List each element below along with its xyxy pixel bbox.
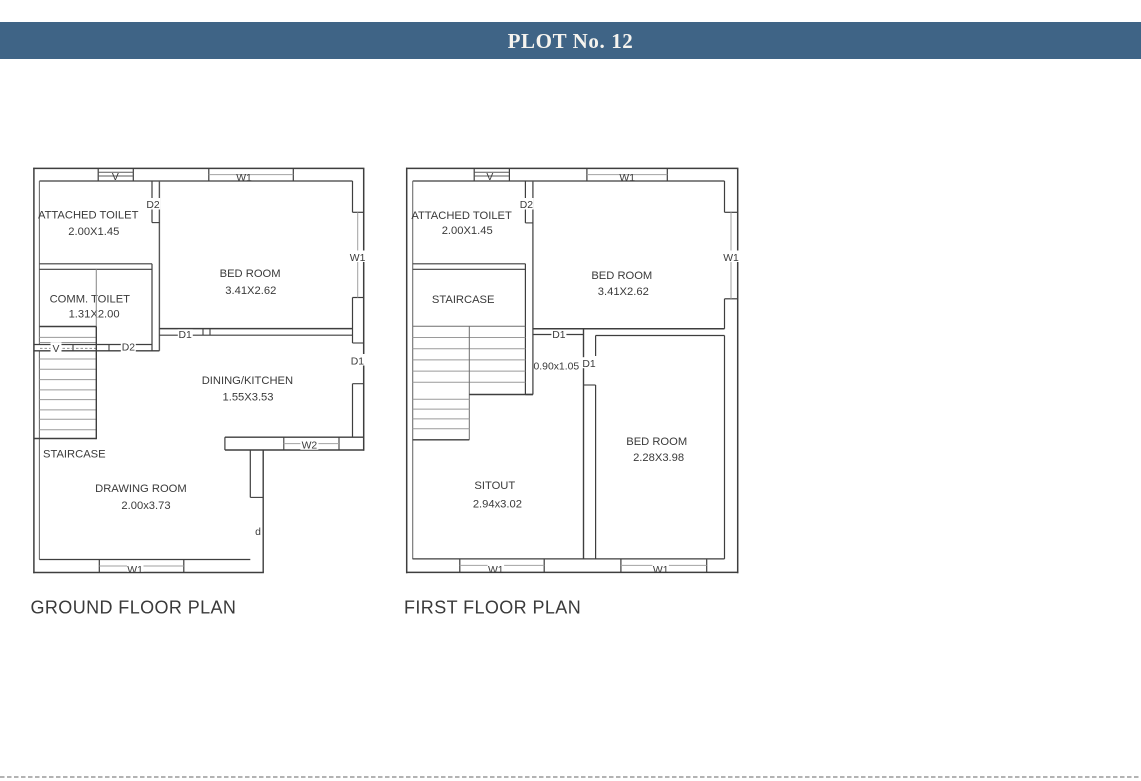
svg-text:D1: D1	[351, 356, 365, 367]
svg-text:BED ROOM: BED ROOM	[220, 268, 281, 280]
svg-text:3.41X2.62: 3.41X2.62	[598, 286, 649, 298]
svg-text:DINING/KITCHEN: DINING/KITCHEN	[202, 375, 293, 387]
svg-text:W1: W1	[127, 565, 143, 576]
svg-text:ATTACHED TOILET: ATTACHED TOILET	[411, 210, 512, 222]
svg-text:D2: D2	[520, 200, 534, 211]
svg-text:1.55X3.53: 1.55X3.53	[222, 391, 273, 403]
svg-text:2.94x3.02: 2.94x3.02	[473, 499, 522, 511]
svg-text:STAIRCASE: STAIRCASE	[43, 449, 106, 461]
svg-text:2.00x3.73: 2.00x3.73	[121, 500, 170, 512]
svg-text:W1: W1	[236, 173, 252, 184]
svg-text:W1: W1	[488, 565, 504, 576]
svg-text:2.00X1.45: 2.00X1.45	[68, 226, 119, 238]
svg-text:0.90x1.05: 0.90x1.05	[534, 362, 580, 373]
svg-text:FIRST FLOOR PLAN: FIRST FLOOR PLAN	[404, 597, 581, 617]
svg-text:W1: W1	[619, 173, 635, 184]
svg-text:D1: D1	[179, 330, 193, 341]
svg-text:BED ROOM: BED ROOM	[591, 270, 652, 282]
svg-text:SITOUT: SITOUT	[474, 480, 515, 492]
svg-text:W2: W2	[302, 441, 318, 452]
svg-text:1.31X2.00: 1.31X2.00	[69, 308, 120, 320]
svg-text:V: V	[53, 344, 60, 355]
svg-text:2.28X3.98: 2.28X3.98	[633, 452, 684, 464]
svg-text:COMM. TOILET: COMM. TOILET	[50, 293, 131, 305]
svg-text:W1: W1	[653, 565, 669, 576]
svg-text:2.00X1.45: 2.00X1.45	[442, 225, 493, 237]
svg-text:STAIRCASE: STAIRCASE	[432, 294, 495, 306]
svg-text:DRAWING ROOM: DRAWING ROOM	[95, 483, 187, 495]
svg-text:W1: W1	[723, 253, 739, 264]
svg-text:V: V	[486, 172, 493, 183]
svg-text:3.41X2.62: 3.41X2.62	[225, 285, 276, 297]
svg-text:D1: D1	[582, 359, 596, 370]
svg-text:ATTACHED TOILET: ATTACHED TOILET	[38, 209, 139, 221]
svg-text:D2: D2	[122, 343, 136, 354]
svg-text:D1: D1	[552, 330, 566, 341]
svg-text:W1: W1	[350, 253, 366, 264]
svg-text:D2: D2	[146, 200, 160, 211]
svg-text:BED ROOM: BED ROOM	[626, 436, 687, 448]
svg-text:GROUND FLOOR PLAN: GROUND FLOOR PLAN	[31, 597, 237, 617]
svg-text:V: V	[112, 172, 119, 183]
svg-text:d: d	[255, 527, 261, 538]
